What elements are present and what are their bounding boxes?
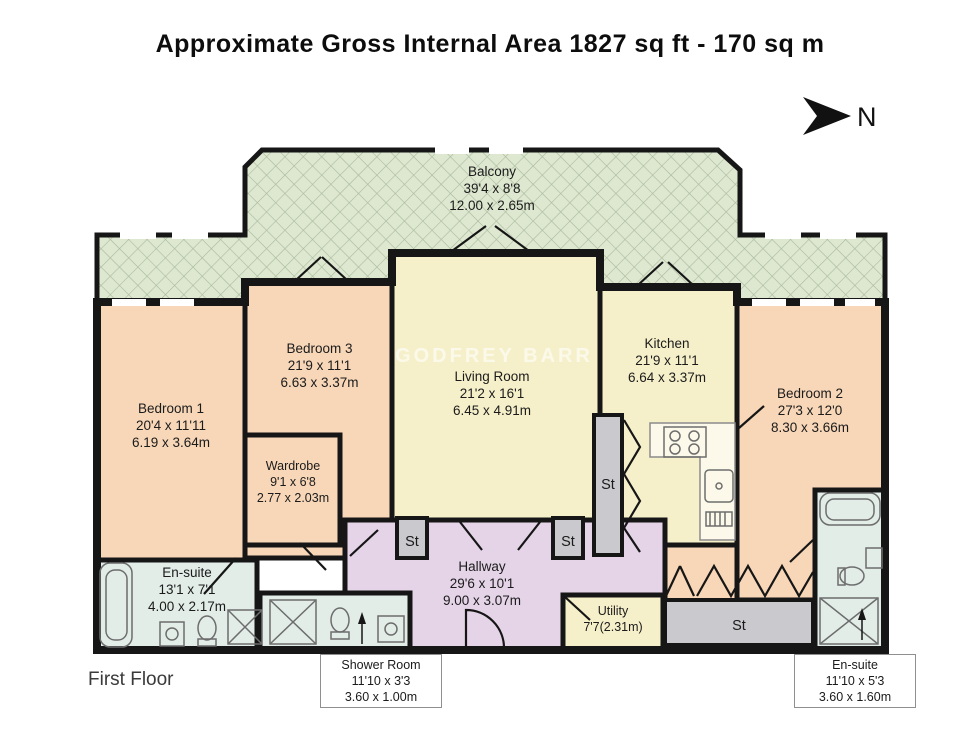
bedroom2-label: Bedroom 2 27'3 x 12'0 8.30 x 3.66m xyxy=(735,385,885,436)
ensuite-left-label: En-suite 13'1 x 7'1 4.00 x 2.17m xyxy=(112,564,262,615)
bedroom3-label: Bedroom 3 21'9 x 11'1 6.63 x 3.37m xyxy=(247,340,392,391)
page-title: Approximate Gross Internal Area 1827 sq … xyxy=(0,30,980,59)
north-arrow-icon: N xyxy=(793,94,893,140)
wardrobe-label: Wardrobe 9'1 x 6'8 2.77 x 2.03m xyxy=(245,458,341,506)
compass-label: N xyxy=(857,102,877,132)
kitchen-label: Kitchen 21'9 x 11'1 6.64 x 3.37m xyxy=(592,335,742,386)
balcony-label: Balcony 39'4 x 8'8 12.00 x 2.65m xyxy=(392,163,592,214)
storage-label: St xyxy=(601,477,615,493)
watermark: GODFREY BARR xyxy=(394,345,594,368)
hallway-label: Hallway 29'6 x 10'1 9.00 x 3.07m xyxy=(392,558,572,609)
utility-label: Utility 7'7(2.31m) xyxy=(565,603,661,635)
ensuite-right-callout: En-suite 11'10 x 5'3 3.60 x 1.60m xyxy=(794,654,916,708)
floorplan-page: St St St St Approximate Gross Internal A… xyxy=(0,0,980,735)
storage-label: St xyxy=(732,618,746,634)
storage-label: St xyxy=(405,534,419,550)
storage-label: St xyxy=(561,534,575,550)
shower-room-callout: Shower Room 11'10 x 3'3 3.60 x 1.00m xyxy=(320,654,442,708)
living-room-label: Living Room 21'2 x 16'1 6.45 x 4.91m xyxy=(387,368,597,419)
floor-label: First Floor xyxy=(88,669,174,691)
bedroom1-label: Bedroom 1 20'4 x 11'11 6.19 x 3.64m xyxy=(97,400,245,451)
